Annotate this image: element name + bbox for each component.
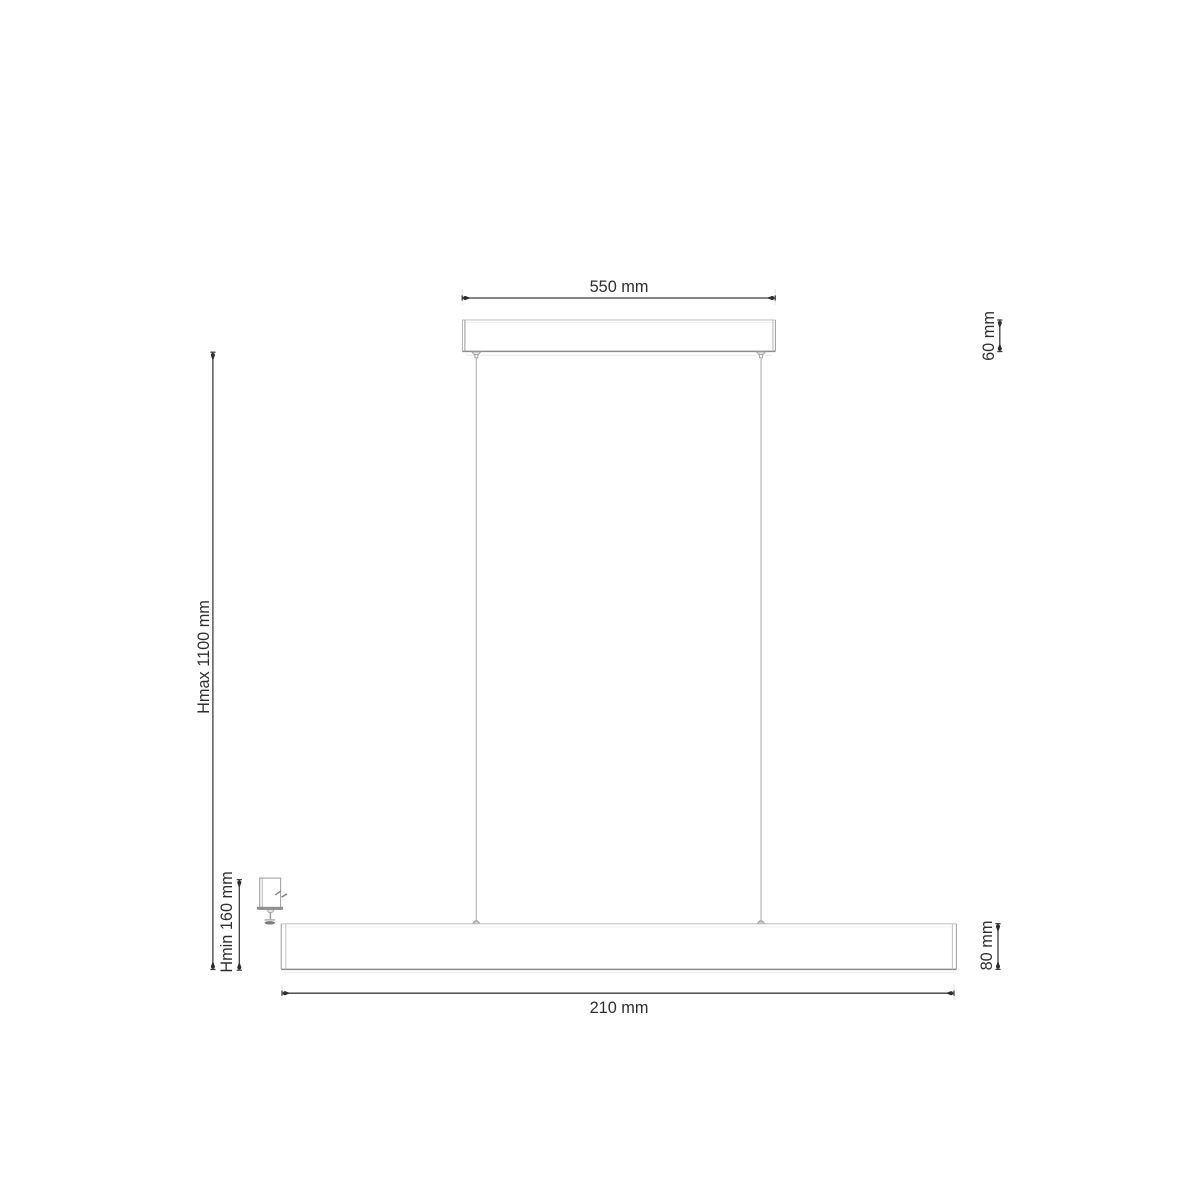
svg-text:Hmax 1100 mm: Hmax 1100 mm [195, 600, 213, 714]
svg-text:210 mm: 210 mm [590, 999, 649, 1017]
svg-text:60 mm: 60 mm [980, 311, 998, 361]
svg-text:550 mm: 550 mm [590, 278, 649, 296]
svg-text:80 mm: 80 mm [978, 921, 996, 971]
svg-text:Hmin 160 mm: Hmin 160 mm [218, 871, 236, 972]
